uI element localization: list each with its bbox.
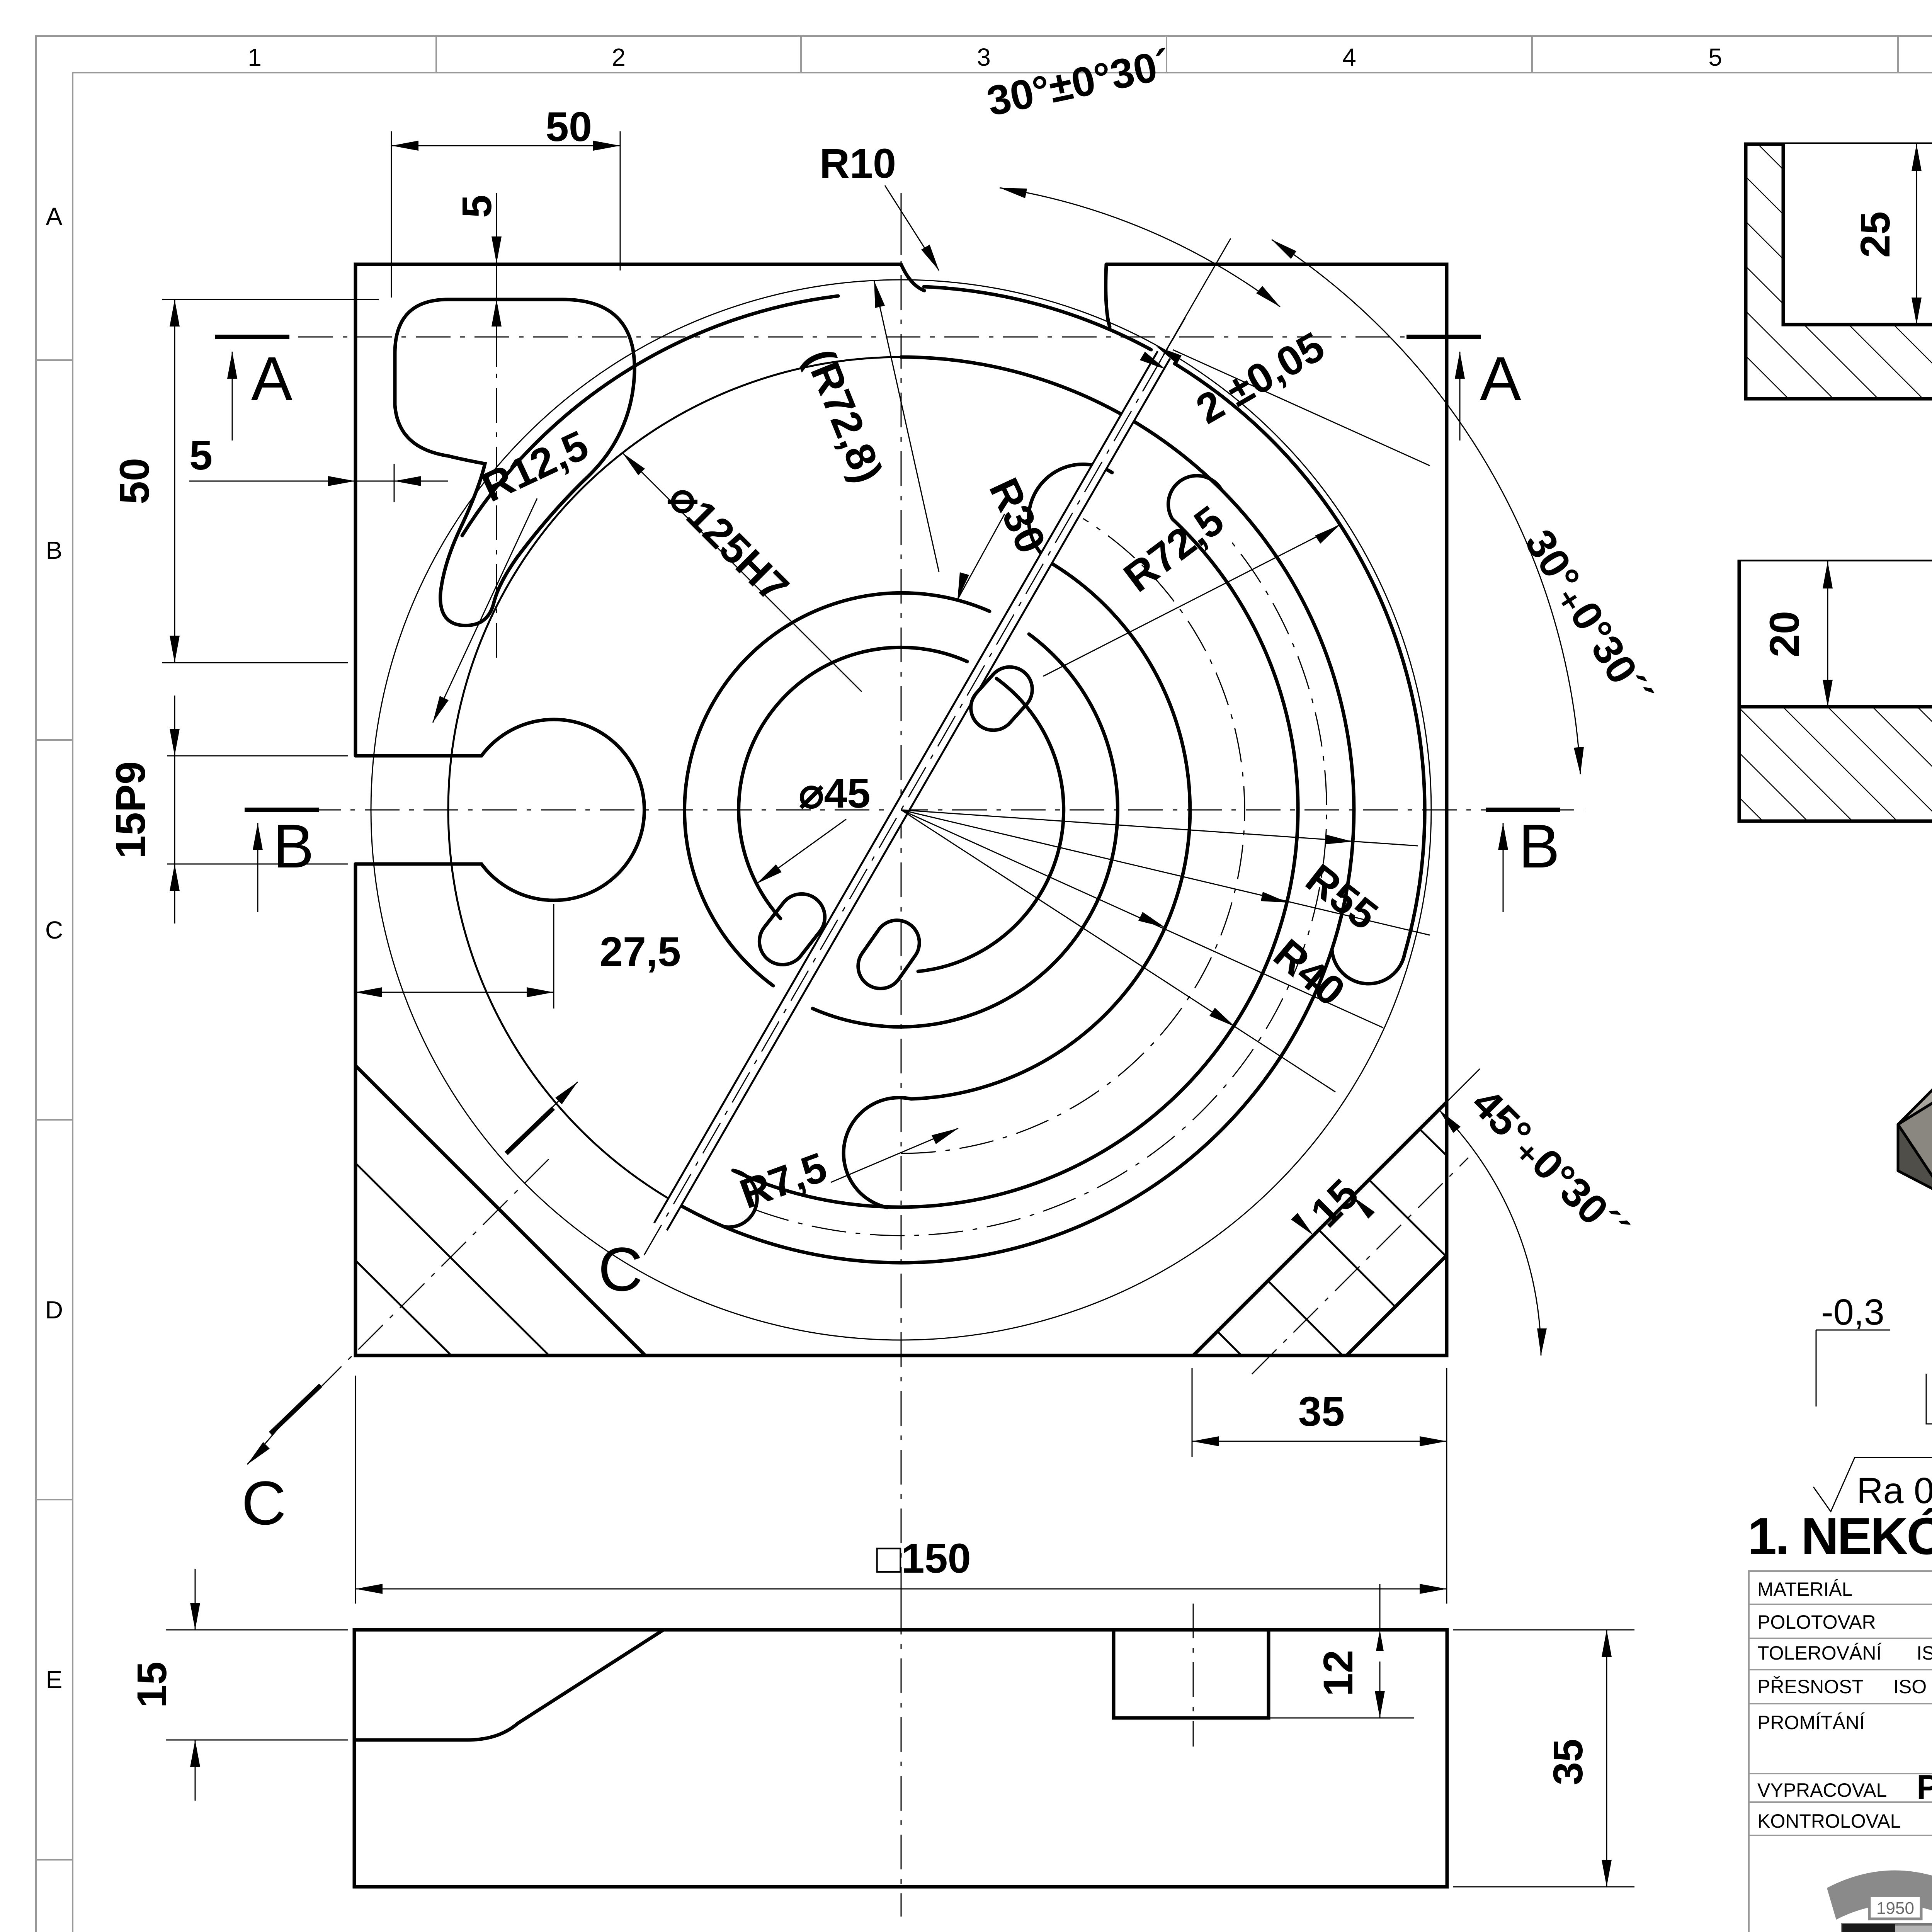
svg-text:C: C [45, 916, 63, 944]
svg-text:C: C [241, 1468, 286, 1537]
svg-text:-0,3: -0,3 [1821, 1292, 1884, 1333]
svg-text:PROMÍTÁNÍ: PROMÍTÁNÍ [1757, 1712, 1865, 1733]
svg-text:27,5: 27,5 [600, 928, 681, 975]
svg-text:50: 50 [546, 103, 592, 150]
svg-text:PAGÁČ: PAGÁČ [1917, 1768, 1932, 1806]
svg-text:A: A [1480, 344, 1521, 413]
svg-text:1. NEKÓTOVANÉ POLOMĚRY R5: 1. NEKÓTOVANÉ POLOMĚRY R5 [1748, 1507, 1932, 1565]
svg-text:5: 5 [453, 195, 500, 218]
svg-text:15P9: 15P9 [107, 761, 154, 859]
svg-text:PŘESNOST: PŘESNOST [1757, 1676, 1864, 1697]
svg-text:R10: R10 [820, 140, 896, 187]
svg-text:B: B [273, 811, 314, 881]
svg-text:KONTROLOVAL: KONTROLOVAL [1757, 1810, 1901, 1832]
svg-text:TOLEROVÁNÍ: TOLEROVÁNÍ [1757, 1642, 1881, 1664]
svg-text:□150: □150 [876, 1535, 971, 1582]
svg-text:4: 4 [1342, 43, 1356, 71]
svg-text:5: 5 [1708, 43, 1722, 71]
svg-text:A: A [251, 344, 293, 413]
svg-text:Ra 0,8: Ra 0,8 [1857, 1470, 1932, 1511]
svg-text:C: C [598, 1235, 643, 1304]
svg-text:2: 2 [612, 43, 626, 71]
svg-text:35: 35 [1298, 1388, 1345, 1435]
svg-text:15: 15 [128, 1662, 175, 1708]
svg-text:50: 50 [111, 458, 158, 504]
svg-text:⌀45: ⌀45 [799, 770, 870, 816]
svg-text:VYPRACOVAL: VYPRACOVAL [1757, 1779, 1887, 1801]
svg-text:20: 20 [1761, 611, 1808, 657]
svg-text:1: 1 [248, 43, 262, 71]
svg-text:POLOTOVAR: POLOTOVAR [1757, 1611, 1876, 1633]
svg-text:ISO 8015: ISO 8015 [1917, 1642, 1932, 1664]
svg-text:B: B [1519, 811, 1560, 881]
svg-text:35: 35 [1544, 1739, 1591, 1785]
svg-text:A: A [46, 202, 63, 230]
svg-text:3: 3 [977, 43, 991, 71]
svg-text:12: 12 [1315, 1650, 1361, 1696]
svg-text:ISO 2768: ISO 2768 [1893, 1676, 1932, 1697]
svg-text:5: 5 [189, 432, 213, 478]
svg-text:1950: 1950 [1876, 1899, 1914, 1918]
svg-text:D: D [45, 1296, 63, 1324]
svg-text:E: E [46, 1666, 63, 1694]
svg-text:MATERIÁL: MATERIÁL [1757, 1578, 1852, 1600]
svg-text:25: 25 [1852, 211, 1898, 258]
svg-text:B: B [46, 536, 63, 564]
